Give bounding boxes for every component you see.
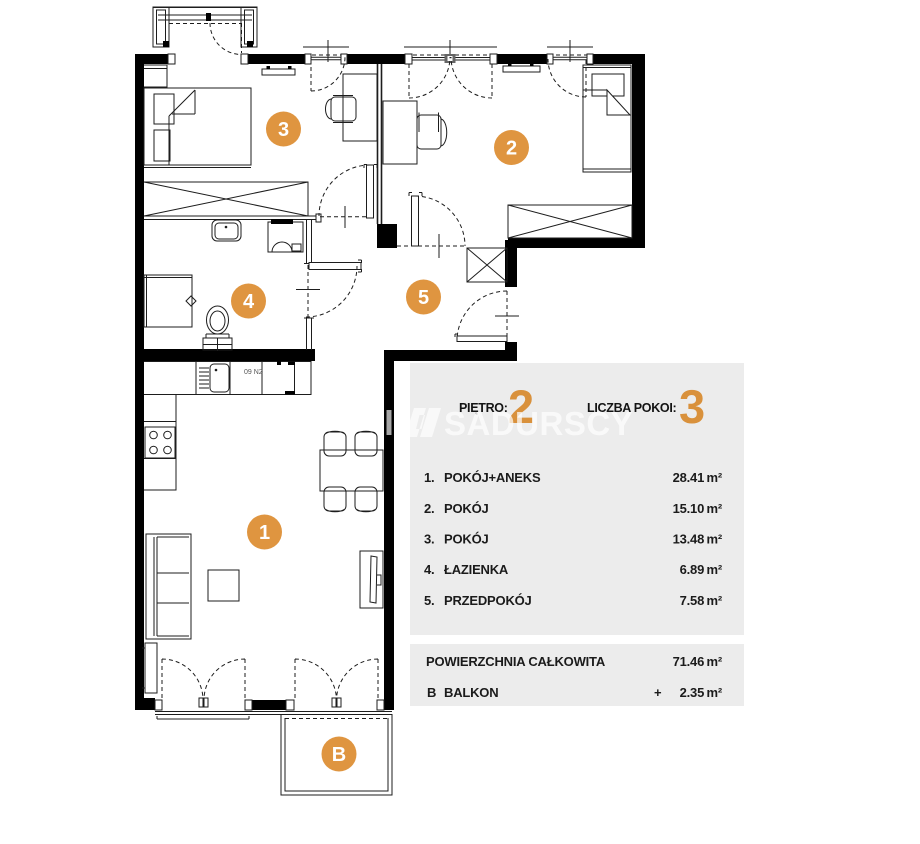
svg-text:28.41 m²: 28.41 m²	[673, 470, 723, 485]
svg-text:3: 3	[679, 380, 705, 433]
svg-text:6.89 m²: 6.89 m²	[680, 562, 723, 577]
svg-text:09 N2: 09 N2	[244, 369, 263, 376]
svg-text:1: 1	[259, 522, 270, 544]
svg-text:SADURSCY: SADURSCY	[444, 405, 633, 442]
svg-text:B: B	[427, 685, 436, 700]
svg-text:3: 3	[278, 119, 289, 141]
svg-text:2: 2	[506, 138, 517, 160]
svg-text:BALKON: BALKON	[444, 685, 498, 700]
svg-text:B: B	[332, 744, 346, 766]
svg-text:4.: 4.	[424, 562, 434, 577]
svg-text:+: +	[654, 685, 662, 700]
svg-text:ŁAZIENKA: ŁAZIENKA	[444, 562, 509, 577]
svg-text:5: 5	[418, 287, 429, 309]
svg-text:POWIERZCHNIA CAŁKOWITA: POWIERZCHNIA CAŁKOWITA	[426, 654, 606, 669]
svg-text:POKÓJ+ANEKS: POKÓJ+ANEKS	[444, 470, 541, 485]
svg-text:5.: 5.	[424, 593, 434, 608]
svg-text:2.35 m²: 2.35 m²	[680, 685, 723, 700]
svg-text:13.48 m²: 13.48 m²	[673, 532, 723, 547]
svg-text:15.10 m²: 15.10 m²	[673, 501, 723, 516]
svg-text:7.58 m²: 7.58 m²	[680, 593, 723, 608]
svg-text:71.46 m²: 71.46 m²	[673, 654, 723, 669]
svg-text:POKÓJ: POKÓJ	[444, 532, 489, 547]
svg-text:1.: 1.	[424, 470, 434, 485]
svg-text:3.: 3.	[424, 532, 434, 547]
svg-text:2.: 2.	[424, 501, 434, 516]
svg-text:POKÓJ: POKÓJ	[444, 501, 489, 516]
svg-text:PRZEDPOKÓJ: PRZEDPOKÓJ	[444, 593, 532, 608]
svg-text:4: 4	[243, 291, 255, 313]
